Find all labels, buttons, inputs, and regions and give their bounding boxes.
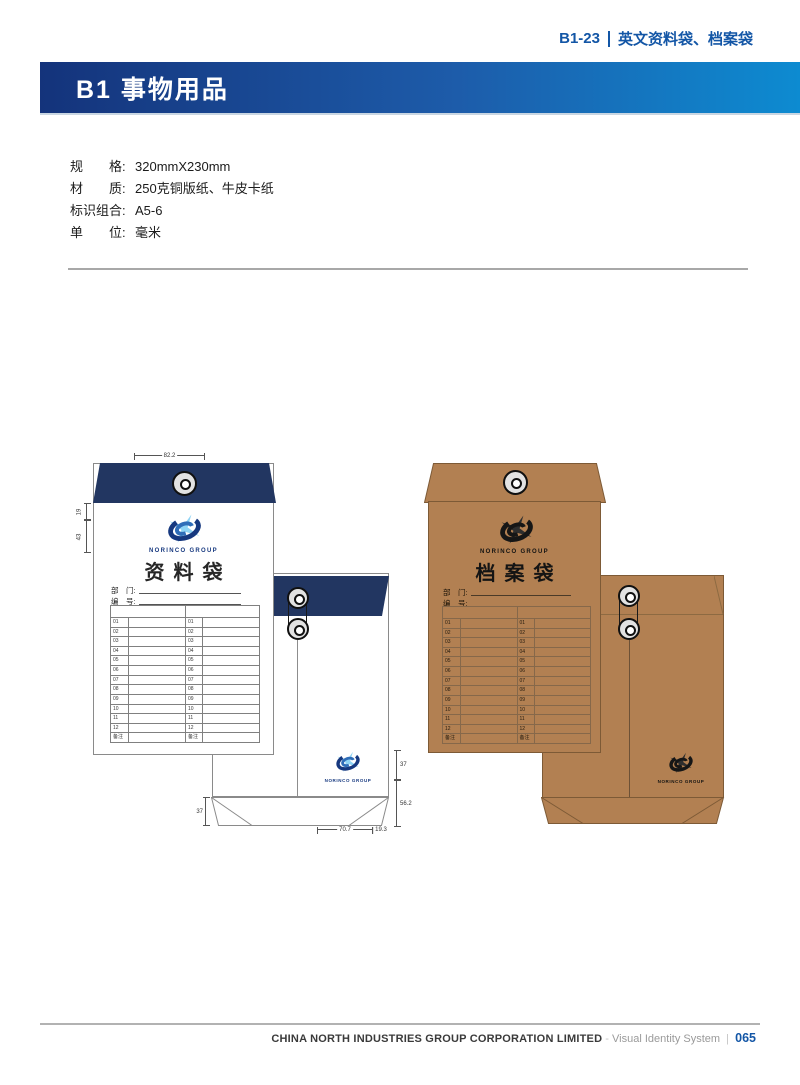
row-number: 01 xyxy=(443,618,460,628)
row-number: 04 xyxy=(185,646,202,656)
grommet-button xyxy=(618,585,640,607)
row-blank-cell xyxy=(128,694,185,704)
row-blank-cell xyxy=(534,647,591,657)
page-number: 065 xyxy=(735,1031,756,1045)
spec-row: 规 格:320mmX230mm xyxy=(70,156,274,178)
row-blank-cell xyxy=(128,713,185,723)
dim-bottom-flap-height: 37 xyxy=(205,797,206,826)
corner-fold-line xyxy=(714,576,725,615)
row-blank-cell xyxy=(460,714,517,724)
norinco-logo-icon xyxy=(662,751,700,776)
table-header-cell xyxy=(111,606,185,617)
spec-label: 材 质: xyxy=(70,178,130,200)
norinco-logo-icon xyxy=(329,750,367,775)
row-blank-cell xyxy=(128,704,185,714)
row-blank-cell xyxy=(534,666,591,676)
row-number: 09 xyxy=(185,694,202,704)
row-blank-cell xyxy=(128,655,185,665)
row-blank-cell xyxy=(460,666,517,676)
header-code: B1-23 英文资料袋、档案袋 xyxy=(559,28,753,49)
row-number: 10 xyxy=(185,704,202,714)
row-number: 10 xyxy=(517,705,534,715)
row-blank-cell xyxy=(202,655,259,665)
dim-back-bottom-band: 56.2 xyxy=(396,780,397,827)
field-line xyxy=(139,593,241,594)
row-number: 01 xyxy=(111,617,128,627)
row-number: 10 xyxy=(443,705,460,715)
company-name: CHINA NORTH INDUSTRIES GROUP CORPORATION… xyxy=(271,1033,602,1045)
norinco-logo-icon xyxy=(158,512,211,547)
bag-title: 档案袋 xyxy=(429,557,600,586)
row-number: 12 xyxy=(443,724,460,734)
system-name: Visual Identity System xyxy=(612,1033,720,1045)
spec-value: 250克铜版纸、牛皮卡纸 xyxy=(135,181,274,196)
row-blank-cell xyxy=(460,685,517,695)
row-blank-cell xyxy=(128,684,185,694)
grommet-button xyxy=(172,471,197,496)
brand-text: NORINCO GROUP xyxy=(94,548,273,554)
row-blank-cell xyxy=(128,617,185,627)
spec-list: 规 格:320mmX230mm材 质:250克铜版纸、牛皮卡纸标识组合:A5-6… xyxy=(70,156,274,244)
header-code-divider-bar xyxy=(608,31,610,47)
row-blank-cell xyxy=(534,628,591,638)
row-blank-cell xyxy=(460,724,517,734)
dim-bottom-edge: 19.3 xyxy=(373,829,389,830)
row-number: 07 xyxy=(517,676,534,686)
spec-value: 毫米 xyxy=(135,225,161,240)
table-header-cell xyxy=(185,606,259,617)
footer-text: CHINA NORTH INDUSTRIES GROUP CORPORATION… xyxy=(271,1031,756,1045)
brand-text: NORINCO GROUP xyxy=(429,549,600,555)
row-blank-cell xyxy=(202,713,259,723)
row-blank-cell xyxy=(202,646,259,656)
row-number: 12 xyxy=(185,723,202,733)
row-number: 05 xyxy=(517,656,534,666)
row-number: 02 xyxy=(185,627,202,637)
row-blank-cell xyxy=(202,627,259,637)
bottom-flap xyxy=(541,797,725,825)
spec-row: 单 位:毫米 xyxy=(70,222,274,244)
section-title: B1 事物用品 xyxy=(76,70,229,106)
row-number: 11 xyxy=(517,714,534,724)
row-number: 03 xyxy=(443,637,460,647)
envelope-front-kraft: NORINCO GROUP 档案袋 部 门: 编 号: 010102020303… xyxy=(428,501,601,753)
row-blank-cell xyxy=(202,665,259,675)
dept-field: 部 门: xyxy=(111,584,241,594)
dim-back-logo-band: 37 xyxy=(396,750,397,780)
row-number: 06 xyxy=(517,666,534,676)
table-header-cell xyxy=(517,607,591,618)
norinco-logo-icon xyxy=(490,513,543,548)
divider-line xyxy=(68,268,748,270)
field-line xyxy=(471,595,571,596)
row-number: 09 xyxy=(517,695,534,705)
back-logo-block: NORINCO GROUP xyxy=(645,751,717,785)
row-number: 12 xyxy=(111,723,128,733)
row-blank-cell xyxy=(460,647,517,657)
row-number: 备注 xyxy=(185,732,202,742)
row-blank-cell xyxy=(534,724,591,734)
row-number: 08 xyxy=(517,685,534,695)
brand-text: NORINCO GROUP xyxy=(312,779,384,784)
row-blank-cell xyxy=(460,637,517,647)
row-blank-cell xyxy=(202,675,259,685)
row-number: 11 xyxy=(185,713,202,723)
row-number: 07 xyxy=(185,675,202,685)
row-number: 02 xyxy=(517,628,534,638)
field-label: 部 门: xyxy=(111,587,136,595)
row-blank-cell xyxy=(202,723,259,733)
row-blank-cell xyxy=(202,732,259,742)
dim-bottom-main: 70.7 xyxy=(317,829,373,830)
row-number: 08 xyxy=(443,685,460,695)
page-canvas: B1-23 英文资料袋、档案袋 B1 事物用品 规 格:320mmX230mm材… xyxy=(0,0,800,1085)
row-blank-cell xyxy=(534,656,591,666)
row-number: 02 xyxy=(443,628,460,638)
contents-table: 0101020203030404050506060707080809091010… xyxy=(110,605,260,743)
dim-logo-block: 43 xyxy=(86,520,87,553)
row-blank-cell xyxy=(534,733,591,743)
spec-label: 标识组合: xyxy=(70,200,130,222)
spec-label: 单 位: xyxy=(70,222,130,244)
dim-top-width: 82.2 xyxy=(134,455,205,456)
row-number: 06 xyxy=(111,665,128,675)
row-blank-cell xyxy=(534,714,591,724)
row-number: 11 xyxy=(443,714,460,724)
row-number: 10 xyxy=(111,704,128,714)
row-number: 03 xyxy=(185,636,202,646)
row-blank-cell xyxy=(128,646,185,656)
spec-label: 规 格: xyxy=(70,156,130,178)
grommet-button xyxy=(287,618,309,640)
row-blank-cell xyxy=(202,617,259,627)
row-blank-cell xyxy=(202,694,259,704)
row-blank-cell xyxy=(534,695,591,705)
section-bar: B1 事物用品 xyxy=(40,62,800,113)
row-number: 04 xyxy=(443,647,460,657)
field-label: 部 门: xyxy=(443,589,468,597)
row-blank-cell xyxy=(534,676,591,686)
row-blank-cell xyxy=(534,637,591,647)
row-number: 04 xyxy=(111,646,128,656)
row-number: 09 xyxy=(111,694,128,704)
row-blank-cell xyxy=(128,675,185,685)
row-blank-cell xyxy=(128,732,185,742)
row-number: 01 xyxy=(517,618,534,628)
spec-row: 标识组合:A5-6 xyxy=(70,200,274,222)
row-blank-cell xyxy=(202,684,259,694)
envelope-string xyxy=(297,640,298,796)
bag-title: 资料袋 xyxy=(94,556,273,585)
spec-value: A5-6 xyxy=(135,203,162,218)
row-number: 06 xyxy=(443,666,460,676)
row-blank-cell xyxy=(128,636,185,646)
footer-separator: | xyxy=(720,1033,735,1045)
row-number: 备注 xyxy=(443,733,460,743)
contents-table: 0101020203030404050506060707080809091010… xyxy=(442,606,591,744)
spec-row: 材 质:250克铜版纸、牛皮卡纸 xyxy=(70,178,274,200)
row-number: 03 xyxy=(517,637,534,647)
row-number: 11 xyxy=(111,713,128,723)
row-blank-cell xyxy=(128,627,185,637)
row-number: 05 xyxy=(111,655,128,665)
row-blank-cell xyxy=(460,628,517,638)
row-number: 08 xyxy=(111,684,128,694)
grommet-button xyxy=(503,470,528,495)
row-blank-cell xyxy=(202,704,259,714)
footer-line xyxy=(40,1023,760,1025)
row-number: 03 xyxy=(111,636,128,646)
row-number: 09 xyxy=(443,695,460,705)
row-number: 01 xyxy=(185,617,202,627)
grommet-button xyxy=(618,618,640,640)
row-blank-cell xyxy=(128,665,185,675)
spec-value: 320mmX230mm xyxy=(135,159,230,174)
footer-dash: - xyxy=(602,1033,612,1045)
number-field: 编 号: xyxy=(111,595,241,605)
row-number: 07 xyxy=(443,676,460,686)
row-blank-cell xyxy=(460,733,517,743)
dept-field: 部 门: xyxy=(443,586,571,596)
grommet-button xyxy=(287,587,309,609)
row-number: 12 xyxy=(517,724,534,734)
row-blank-cell xyxy=(202,636,259,646)
row-blank-cell xyxy=(460,618,517,628)
row-blank-cell xyxy=(534,618,591,628)
row-number: 05 xyxy=(443,656,460,666)
row-blank-cell xyxy=(534,685,591,695)
row-number: 05 xyxy=(185,655,202,665)
table-header-cell xyxy=(443,607,517,618)
row-blank-cell xyxy=(460,656,517,666)
header-code-number: B1-23 xyxy=(559,30,600,47)
field-label: 编 号: xyxy=(111,598,136,606)
bottom-flap xyxy=(211,797,390,827)
row-blank-cell xyxy=(460,705,517,715)
row-number: 04 xyxy=(517,647,534,657)
row-number: 备注 xyxy=(111,732,128,742)
row-blank-cell xyxy=(534,705,591,715)
row-number: 备注 xyxy=(517,733,534,743)
row-number: 07 xyxy=(111,675,128,685)
dim-flap-offset: 19 xyxy=(86,503,87,520)
row-number: 02 xyxy=(111,627,128,637)
row-blank-cell xyxy=(460,676,517,686)
row-blank-cell xyxy=(128,723,185,733)
back-logo-block: NORINCO GROUP xyxy=(312,750,384,784)
row-number: 08 xyxy=(185,684,202,694)
brand-text: NORINCO GROUP xyxy=(645,780,717,785)
envelope-front-white: NORINCO GROUP 资料袋 部 门: 编 号: 010102020303… xyxy=(93,463,274,755)
envelope-string xyxy=(629,640,630,797)
row-blank-cell xyxy=(460,695,517,705)
row-number: 06 xyxy=(185,665,202,675)
header-code-title: 英文资料袋、档案袋 xyxy=(618,28,753,49)
